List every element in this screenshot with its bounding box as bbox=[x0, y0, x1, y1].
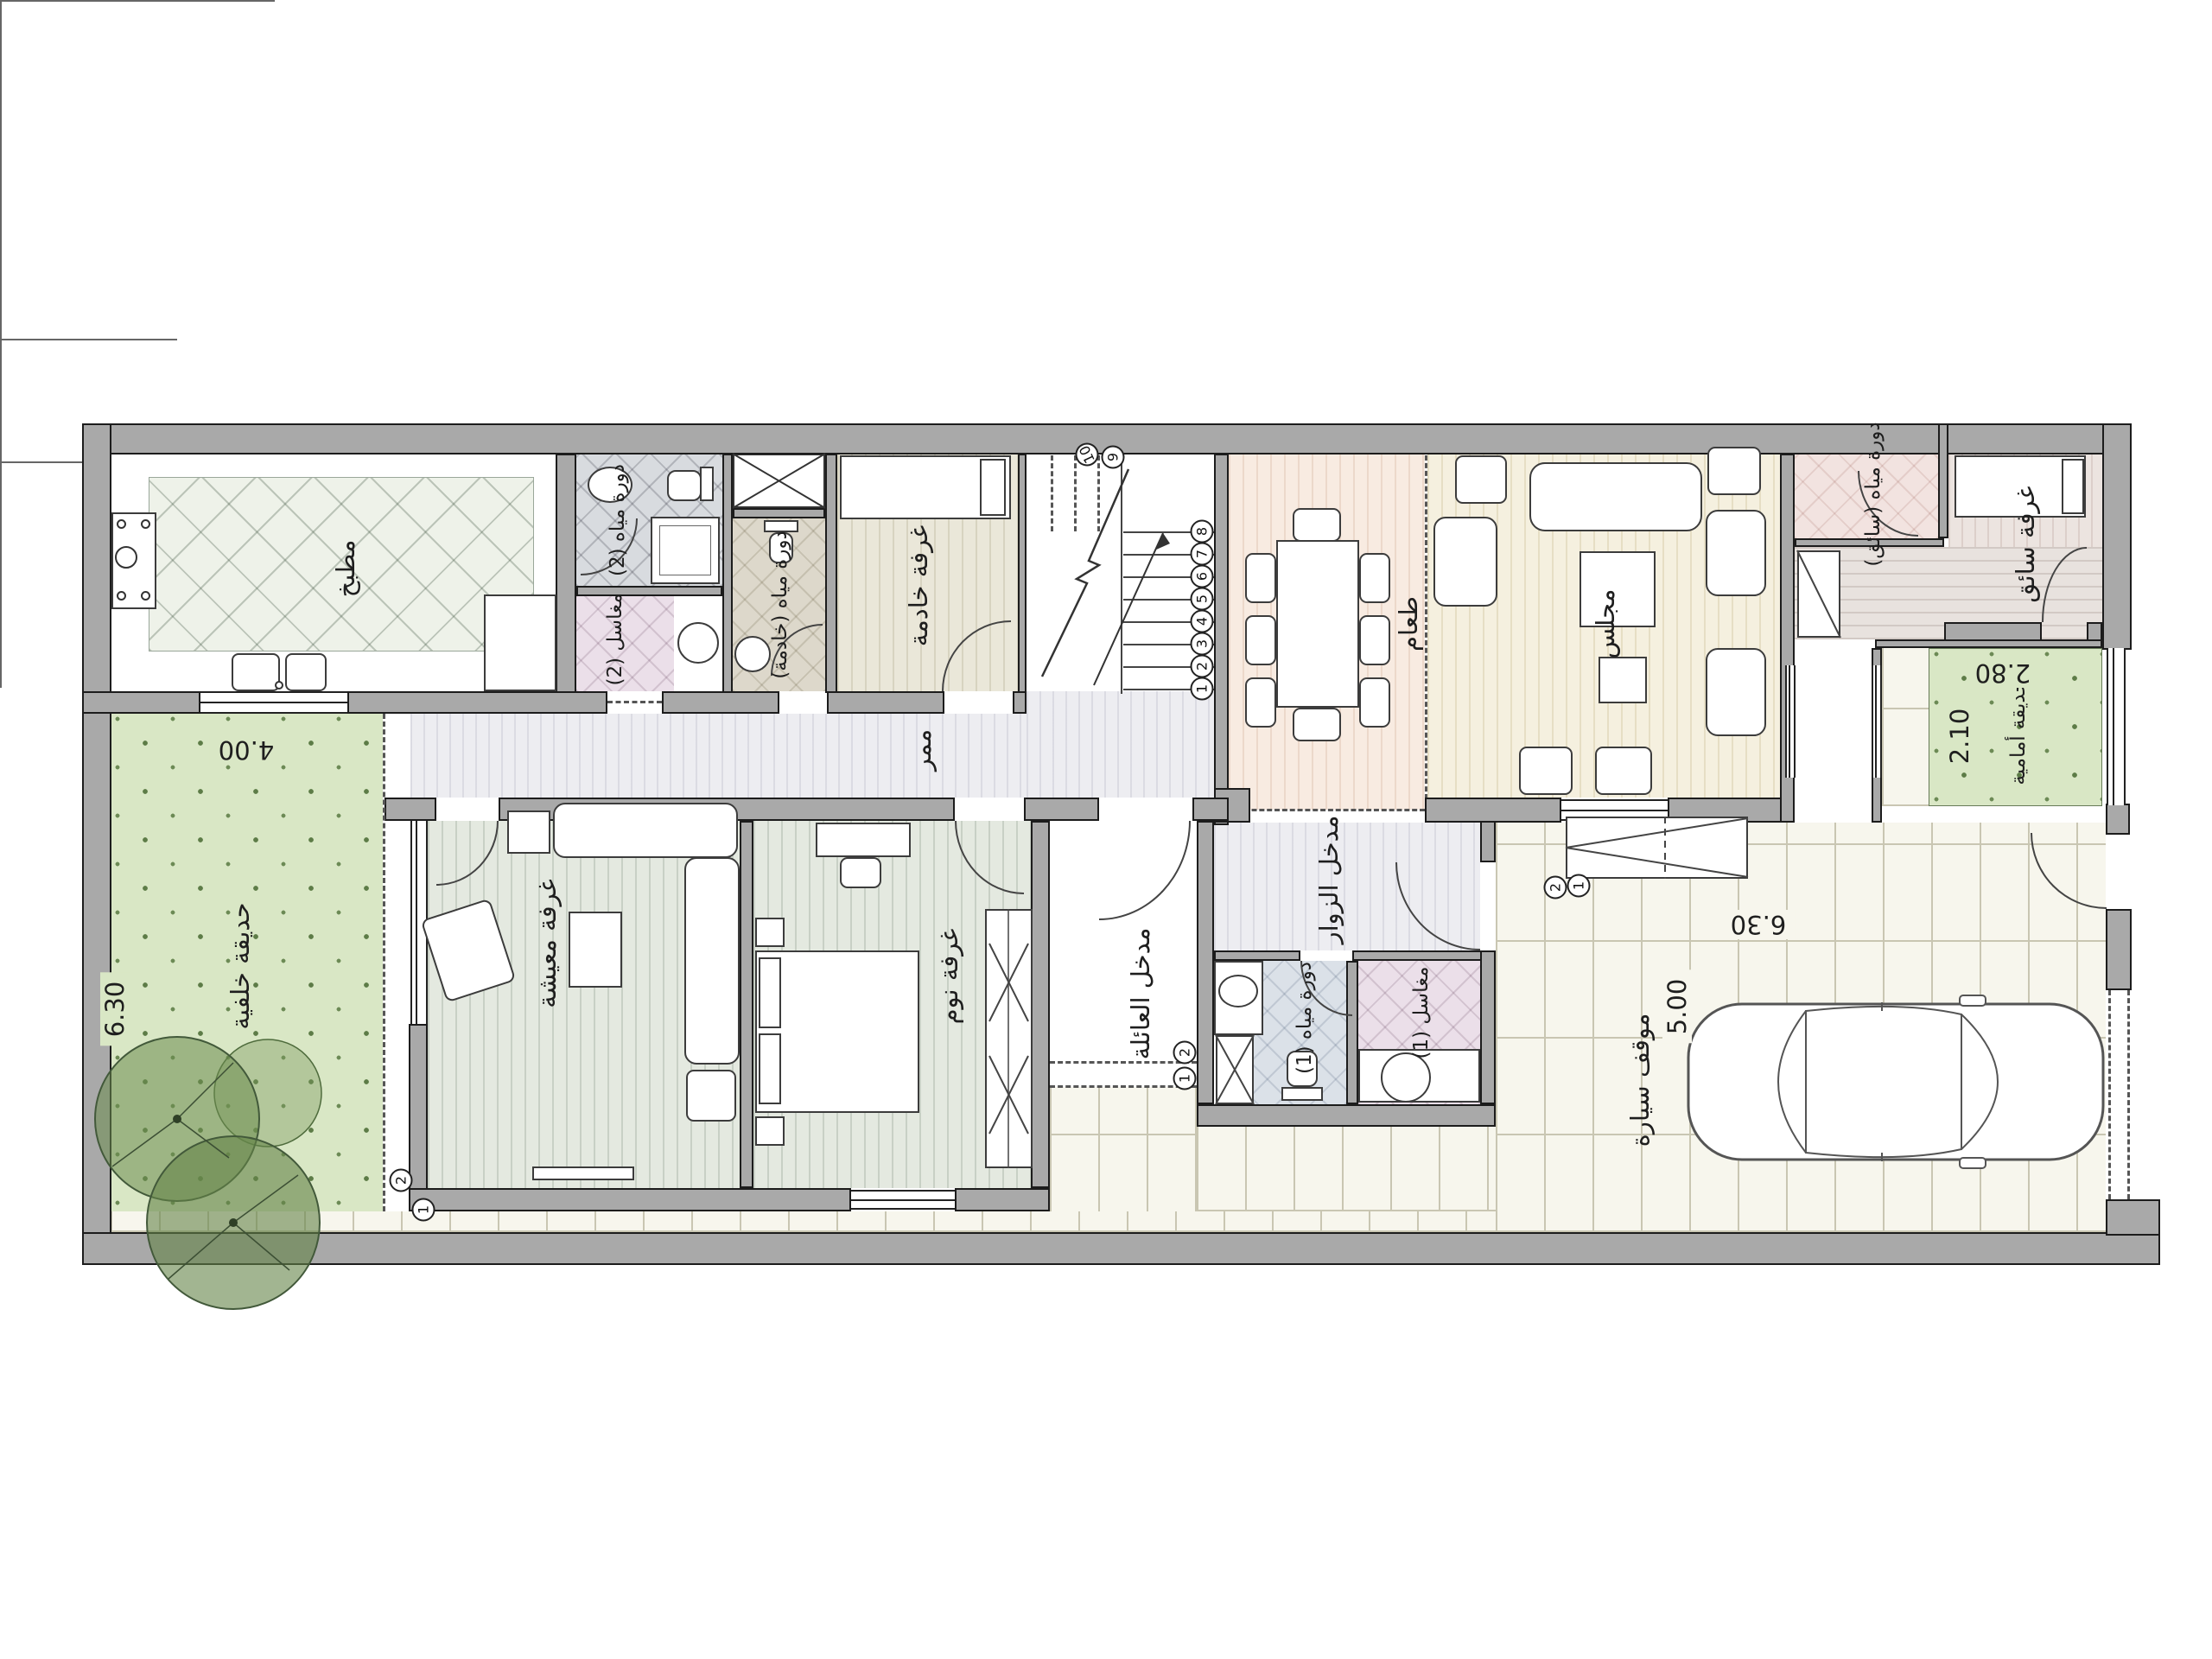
car-gate-dashed-2 bbox=[2127, 990, 2130, 1199]
front-fence-railing bbox=[2107, 648, 2126, 805]
stove-burner-large bbox=[115, 546, 137, 569]
marker-2: 2 bbox=[1173, 1041, 1197, 1065]
wall-living-bedroom bbox=[740, 821, 753, 1188]
wall-garden-north bbox=[1875, 639, 2102, 648]
room-label-bath2: دورة مياه (2) bbox=[607, 464, 629, 576]
bed-pillow bbox=[759, 957, 781, 1028]
sinks2-opening bbox=[607, 701, 662, 703]
bath2-toilet-tank bbox=[700, 467, 714, 501]
stair-number-8: 8 bbox=[1191, 520, 1214, 543]
bath1-shower-x bbox=[1216, 1035, 1254, 1104]
room-label-maid-room: غرفة خادمة bbox=[904, 525, 933, 647]
room-label-kitchen: مطبخ bbox=[331, 540, 360, 598]
floor-plan: مطبخ دورة مياه (2) مغاسل (2) دورة مياه (… bbox=[0, 0, 2212, 1659]
car bbox=[1685, 995, 2108, 1168]
bedroom-desk bbox=[816, 823, 911, 857]
lobby-window-east bbox=[1872, 665, 1882, 778]
wall-kitchen-east bbox=[556, 454, 576, 694]
kitchen-island-counter bbox=[484, 594, 556, 691]
room-label-visitor-entrance: مدخل الزوار bbox=[1314, 816, 1344, 944]
fence-pier-2 bbox=[2106, 909, 2132, 990]
dining-chair bbox=[1293, 508, 1341, 542]
wall-shaft-south bbox=[733, 508, 825, 518]
room-label-corridor: ممر bbox=[907, 729, 937, 771]
room-label-family-entrance: مدخل العائلة bbox=[1126, 928, 1155, 1060]
stair-number-3: 3 bbox=[1191, 632, 1214, 656]
kitchen-window bbox=[200, 691, 347, 714]
room-label-bedroom: غرفة نوم bbox=[934, 929, 963, 1025]
stair-number-5: 5 bbox=[1191, 588, 1214, 611]
wall-majlis-south-w bbox=[1425, 798, 1561, 823]
dim-line bbox=[0, 2, 2, 339]
wall-bedroom-family bbox=[1031, 821, 1050, 1188]
bedroom-nightstand bbox=[755, 1116, 785, 1146]
family-entry-paving bbox=[1050, 1087, 1197, 1232]
dim-front-garden-depth: 2.10 bbox=[1945, 702, 1974, 772]
dining-chair bbox=[1245, 553, 1276, 603]
kitchen-sink-1 bbox=[232, 653, 280, 691]
kitchen-faucet bbox=[275, 681, 283, 690]
wall-driver-bath-east bbox=[1938, 423, 1948, 538]
dining-chair bbox=[1293, 708, 1341, 741]
room-label-parking: موقف سيارة bbox=[1625, 1014, 1655, 1147]
bath2-shower-inner bbox=[659, 525, 711, 575]
outer-wall-right-upper bbox=[2102, 423, 2132, 650]
family-threshold-1 bbox=[1050, 1061, 1197, 1064]
stair-number-4: 4 bbox=[1191, 610, 1214, 633]
dim-back-garden-depth: 6.30 bbox=[100, 973, 130, 1046]
room-label-sinks2: مغاسل (2) bbox=[604, 593, 626, 685]
wall-maidroom-west bbox=[825, 454, 837, 693]
dining-chair bbox=[1359, 553, 1390, 603]
driver-bed-pillow bbox=[2062, 459, 2084, 514]
wall-bath2-east bbox=[722, 454, 733, 693]
majlis-sofa-right-1 bbox=[1706, 510, 1766, 596]
wall-maidroom-east bbox=[1018, 454, 1027, 693]
majlis-chair bbox=[1595, 747, 1652, 795]
marker-2: 2 bbox=[390, 1169, 413, 1192]
living-side-table bbox=[507, 810, 550, 854]
wall-stairs-east bbox=[1214, 454, 1229, 825]
room-label-majlis: مجلس bbox=[1591, 589, 1620, 659]
bath1-toilet-tank bbox=[1281, 1087, 1323, 1101]
front-walk-paving bbox=[1882, 648, 1929, 806]
dining-majlis-divider bbox=[1425, 455, 1427, 799]
wall-seg bbox=[827, 691, 944, 714]
marker-1: 1 bbox=[1173, 1067, 1197, 1090]
entrance-lobby-area bbox=[1795, 648, 1872, 823]
room-label-front-garden: حديقة أمامية bbox=[2007, 680, 2030, 785]
room-label-driver-room: غرفة سائق bbox=[2011, 486, 2040, 602]
wc-south-paving bbox=[1197, 1127, 1496, 1211]
kitchen-sink-2 bbox=[285, 653, 327, 691]
hall-closet-diagonal bbox=[1797, 550, 1840, 638]
sinks1-basin bbox=[1381, 1052, 1431, 1103]
outer-wall-bottom bbox=[82, 1232, 2160, 1265]
bedroom-desk-chair bbox=[840, 857, 881, 888]
marker-1: 1 bbox=[412, 1198, 435, 1222]
dim-line bbox=[0, 463, 2, 688]
corridor-under-stairs bbox=[1027, 691, 1214, 798]
wall-wc-north-w bbox=[1214, 950, 1300, 961]
fence-pier-1 bbox=[2106, 804, 2130, 835]
room-label-dining: طعام bbox=[1394, 596, 1423, 652]
majlis-armchair bbox=[1707, 447, 1761, 495]
majlis-chair bbox=[1519, 747, 1573, 795]
dining-south-opening bbox=[1229, 809, 1425, 811]
dim-line bbox=[0, 339, 177, 340]
stair-number-7: 7 bbox=[1191, 543, 1214, 566]
living-ottoman bbox=[686, 1070, 736, 1122]
bath2-toilet-bowl bbox=[667, 470, 702, 501]
wardrobe-diagonals bbox=[985, 909, 1033, 1168]
room-label-bath1: دورة مياه (1) bbox=[1294, 962, 1316, 1074]
wall-wc-south bbox=[1197, 1104, 1496, 1127]
stove-burner bbox=[117, 519, 126, 529]
marker-2: 2 bbox=[1544, 876, 1567, 899]
majlis-armchair bbox=[1455, 455, 1507, 504]
living-coffee-table bbox=[569, 912, 622, 988]
dining-chair bbox=[1245, 615, 1276, 665]
maid-bed-pillow bbox=[980, 459, 1006, 516]
car-gate-dashed-1 bbox=[2108, 990, 2111, 1199]
wall-seg bbox=[1024, 798, 1099, 821]
dim-yard-width: 6.30 bbox=[1722, 910, 1796, 939]
majlis-side-table bbox=[1599, 657, 1647, 703]
living-sofa-top bbox=[553, 803, 738, 858]
majlis-sofa-left bbox=[1433, 517, 1497, 607]
wall-seg bbox=[1013, 691, 1027, 714]
sinks2-basin bbox=[677, 622, 719, 664]
wall-bath2-south bbox=[576, 586, 722, 596]
wall-visitor-east-n bbox=[1480, 821, 1496, 862]
majlis-sofa-right-2 bbox=[1706, 648, 1766, 736]
wall-seg bbox=[1192, 798, 1229, 821]
wall-seg bbox=[347, 691, 607, 714]
room-label-driver-bath: دورة مياه (سائق) bbox=[1862, 422, 1885, 566]
tv-console bbox=[532, 1166, 634, 1180]
bed-pillow bbox=[759, 1033, 781, 1104]
entry-step-wedge bbox=[1566, 817, 1748, 879]
stair-number-9: 9 bbox=[1102, 446, 1125, 469]
wall-visitor-east-s bbox=[1480, 950, 1496, 1104]
dining-chair bbox=[1359, 615, 1390, 665]
wall-family-east bbox=[1197, 821, 1214, 1104]
room-label-sinks1: مغاسل (1) bbox=[1410, 966, 1433, 1058]
wall-seg bbox=[385, 798, 436, 821]
dining-table bbox=[1276, 540, 1359, 708]
bedroom-window bbox=[851, 1190, 955, 1210]
lobby-window-west bbox=[1785, 665, 1796, 778]
stove-burner bbox=[141, 591, 150, 601]
bath1-sink bbox=[1218, 975, 1258, 1007]
wall-seg bbox=[82, 691, 200, 714]
marker-1: 1 bbox=[1567, 874, 1591, 898]
dim-line bbox=[0, 0, 275, 2]
majlis-sofa-top bbox=[1529, 462, 1702, 531]
bedroom-nightstand bbox=[755, 918, 785, 947]
stair-break-arrow bbox=[1027, 454, 1214, 696]
living-sofa-right bbox=[684, 857, 740, 1065]
dim-front-garden-width: 2.80 bbox=[1968, 658, 2038, 688]
stair-number-2: 2 bbox=[1191, 655, 1214, 678]
stair-number-6: 6 bbox=[1191, 565, 1214, 588]
maid-bath-sink bbox=[734, 636, 771, 672]
dining-chair bbox=[1359, 677, 1390, 728]
stove-burner bbox=[141, 519, 150, 529]
stove-burner bbox=[117, 591, 126, 601]
wall-wc-north-e bbox=[1352, 950, 1482, 961]
dim-parking-length: 5.00 bbox=[1662, 970, 1692, 1044]
dining-chair bbox=[1245, 677, 1276, 728]
room-label-living: غرفة معيشة bbox=[532, 879, 562, 1008]
shaft-x bbox=[733, 454, 825, 508]
room-label-maid-bath: دورة مياه (خادمة) bbox=[769, 531, 791, 679]
dim-line bbox=[0, 340, 2, 461]
fence-corner-pier bbox=[2106, 1199, 2160, 1236]
wall-seg bbox=[955, 1188, 1050, 1211]
wall-seg bbox=[409, 1188, 851, 1211]
stair-number-1: 1 bbox=[1191, 677, 1214, 701]
room-label-back-garden: حديقة خلفية bbox=[226, 902, 255, 1029]
wall-seg bbox=[662, 691, 779, 714]
dim-back-garden-width: 4.00 bbox=[210, 735, 283, 765]
